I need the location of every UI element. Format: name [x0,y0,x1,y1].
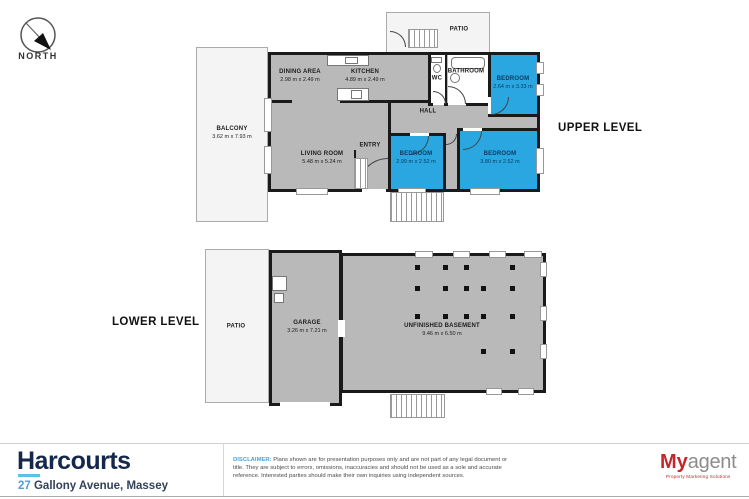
upper-level-label: UPPER LEVEL [558,122,642,134]
wall-segment [466,103,490,106]
room-name: UNFINISHED BASEMENT [404,323,480,331]
room-dims: 5.48 m x 5.24 m [301,158,344,165]
property-address: 27 Gallony Avenue, Massey [18,480,168,492]
harcourts-logo-underline [18,474,40,477]
exterior-stairs-lower [390,394,445,418]
harcourts-logo: Harcourts [17,447,131,476]
room-label-living: LIVING ROOM 5.48 m x 5.24 m [301,151,344,165]
room-name: ENTRY [359,142,380,150]
room-label-dining: DINING AREA 2.98 m x 2.49 m [279,69,321,83]
patio-stairs [408,29,438,48]
garage-door-opening [280,402,330,408]
room-name: BALCONY [212,126,251,134]
basement-post [481,286,486,291]
window-gap [453,251,470,258]
laundry-fixture [274,293,284,303]
room-label-bedroom3: BEDROOM 3.80 m x 2.52 m [480,151,519,165]
window-gap [540,306,547,321]
window-gap [264,98,272,132]
room-label-bedroom2: BEDROOM 2.99 m x 2.52 m [396,151,435,165]
entry-stairs [354,158,368,189]
lower-level-label: LOWER LEVEL [112,316,199,328]
room-label-upper-patio: PATIO [450,26,468,34]
basement-post [464,286,469,291]
basement-post [415,286,420,291]
basement-post [464,314,469,319]
room-name: PATIO [450,26,468,34]
room-label-lower-patio: PATIO [227,323,245,331]
wall-segment [457,128,460,189]
basement-post [443,265,448,270]
room-name: BEDROOM [396,151,435,159]
myagent-logo: Myagent Property Marketing Solutions [660,451,736,479]
address-street: Gallony Avenue, Massey [31,480,168,492]
window-gap [415,251,433,258]
basement-post [481,349,486,354]
basement-post [510,265,515,270]
room-dims: 4.89 m x 2.49 m [345,76,384,83]
room-name: HALL [420,108,437,116]
footer-vertical-divider [223,443,224,497]
room-name: KITCHEN [345,69,384,77]
basement-post [464,265,469,270]
wall-segment [488,114,540,117]
room-name: GARAGE [287,320,326,328]
disclaimer-label: DISCLAIMER: [233,457,272,463]
room-label-entry: ENTRY [359,142,380,150]
room-dims: 3.26 m x 7.21 m [287,327,326,334]
window-gap [524,251,542,258]
window-gap [264,146,272,174]
basement-post [443,286,448,291]
window-gap [536,84,544,96]
room-dims: 2.99 m x 2.52 m [396,158,435,165]
window-gap [518,388,534,395]
room-name: LIVING ROOM [301,151,344,159]
basement-post [510,286,515,291]
room-name: WC [432,75,442,83]
myagent-wordmark-my: My [660,451,688,473]
window-gap [540,344,547,359]
basement-post [510,349,515,354]
wall-segment [445,55,447,105]
wall-segment [388,100,391,189]
room-label-bedroom1: BEDROOM 2.64 m x 3.33 m [493,76,532,90]
north-label: NORTH [13,51,63,61]
room-name: DINING AREA [279,69,321,77]
window-gap [536,148,544,174]
window-gap [470,188,500,195]
room-label-basement: UNFINISHED BASEMENT 9.46 m x 6.50 m [404,323,480,337]
room-label-kitchen: KITCHEN 4.89 m x 2.49 m [345,69,384,83]
myagent-wordmark: Myagent [660,451,736,474]
room-dims: 9.46 m x 6.50 m [404,330,480,337]
laundry-tub [272,276,287,291]
room-name: BEDROOM [493,76,532,84]
basement-door-opening [338,320,345,337]
room-label-wc: WC [432,75,442,83]
room-label-garage: GARAGE 3.26 m x 7.21 m [287,320,326,334]
floorplan-page: NORTH [0,0,749,499]
kitchen-sink [345,57,358,64]
bathtub [451,57,485,69]
room-name: PATIO [227,323,245,331]
basement-post [443,314,448,319]
room-dims: 2.98 m x 2.49 m [279,76,321,83]
room-name: BATHROOM [448,68,484,76]
room-dims: 2.64 m x 3.33 m [493,83,532,90]
window-gap [536,62,544,74]
entry-door-opening [362,189,386,194]
address-number: 27 [18,480,31,492]
room-name: BEDROOM [480,151,519,159]
footer-bottom-divider [0,496,749,497]
window-gap [296,188,328,195]
room-label-hall: HALL [420,108,437,116]
window-gap [486,388,502,395]
room-label-bathroom: BATHROOM [448,68,484,76]
room-label-balcony: BALCONY 3.62 m x 7.93 m [212,126,251,140]
basement-post [481,314,486,319]
window-gap [540,262,547,277]
exterior-stairs-upper [390,192,444,222]
basement-post [415,314,420,319]
disclaimer-text: DISCLAIMER: Plans shown are for presenta… [233,456,511,480]
room-dims: 3.62 m x 7.93 m [212,133,251,140]
window-gap [489,251,506,258]
toilet-bowl [433,64,441,73]
room-dims: 3.80 m x 2.52 m [480,158,519,165]
north-compass: NORTH [8,8,68,70]
footer-top-divider [0,443,749,444]
basement-post [510,314,515,319]
basement-post [415,265,420,270]
myagent-tagline: Property Marketing Solutions [660,474,736,479]
disclaimer-body: Plans shown are for presentation purpose… [233,457,507,479]
kitchen-stove [351,90,362,99]
myagent-wordmark-agent: agent [688,451,737,473]
toilet-tank [431,57,442,63]
